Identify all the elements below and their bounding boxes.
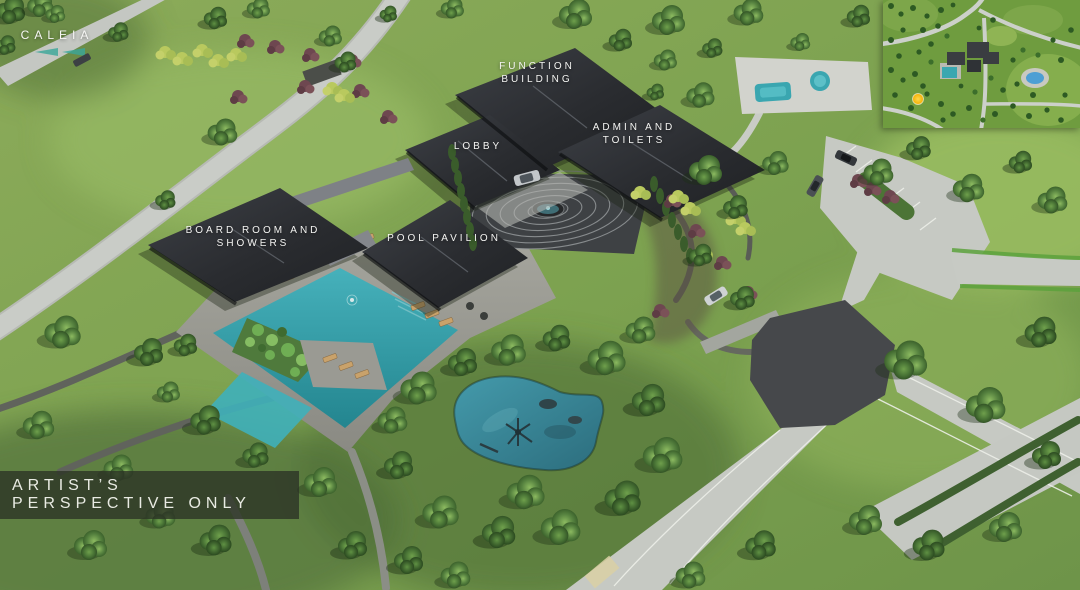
estate-name-label: CALEIA [21,28,94,42]
minimap-splash-pool [1026,72,1044,84]
artists-perspective-banner: ARTIST’S PERSPECTIVE ONLY [0,471,299,519]
minimap-pool [942,67,957,78]
location-marker-icon[interactable] [913,94,924,105]
splash-pad [735,57,872,114]
artist-perspective-render: CALEIA FUNCTION BUILDING LOBBY ADMIN AND… [0,0,1080,590]
swimmer [350,298,354,302]
disclaimer-text: ARTIST’S PERSPECTIVE ONLY [12,477,299,513]
minimap-plan [883,0,1080,128]
site-minimap[interactable] [883,0,1080,128]
